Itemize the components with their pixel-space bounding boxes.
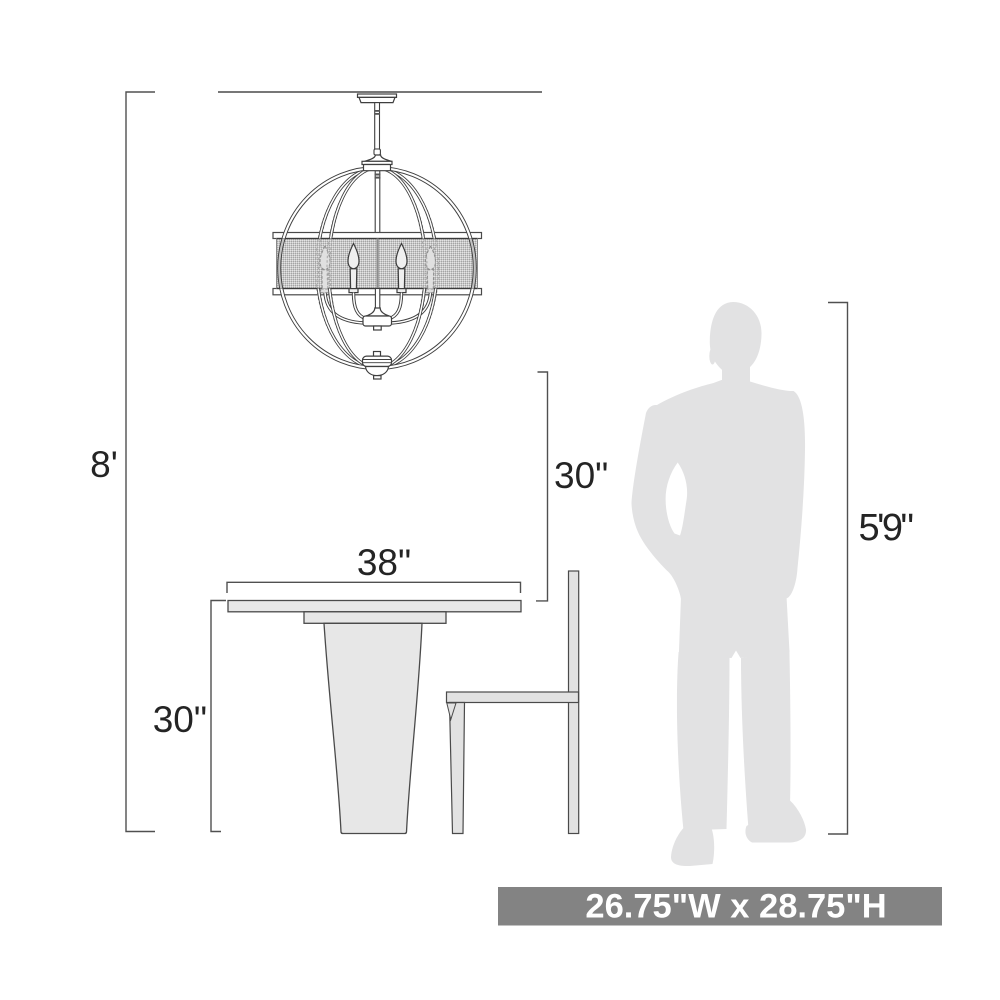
svg-text:38": 38": [357, 542, 411, 583]
svg-text:26.75"W x 28.75"H: 26.75"W x 28.75"H: [585, 888, 886, 926]
svg-text:8': 8': [90, 444, 118, 485]
svg-text:5'9": 5'9": [858, 507, 912, 549]
svg-text:30": 30": [554, 455, 608, 496]
svg-text:30": 30": [153, 699, 207, 740]
